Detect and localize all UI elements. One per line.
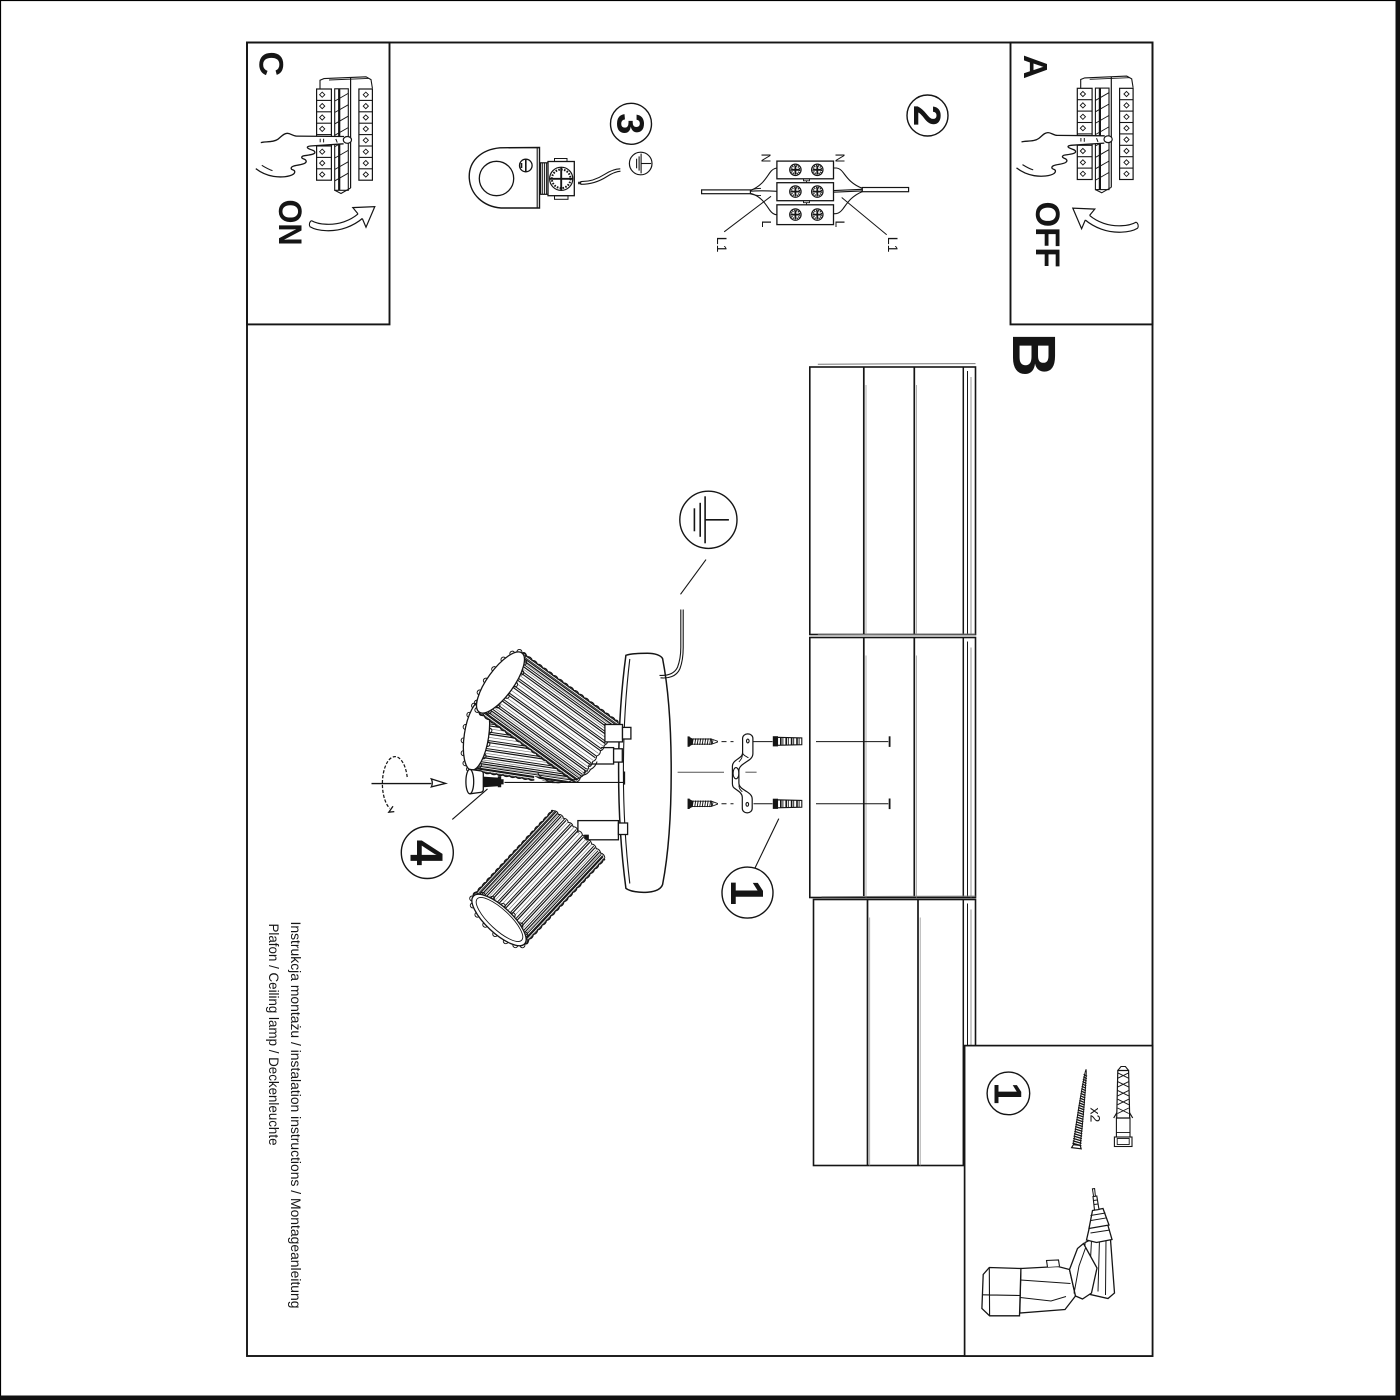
svg-text:x2: x2 <box>1088 1108 1104 1123</box>
svg-text:1: 1 <box>985 1083 1028 1105</box>
svg-text:N: N <box>759 154 773 163</box>
svg-text:1: 1 <box>721 880 773 906</box>
svg-text:Instrukcja montażu / instalati: Instrukcja montażu / instalation instruc… <box>288 922 303 1309</box>
svg-text:L1: L1 <box>714 237 730 253</box>
svg-text:N: N <box>832 154 846 163</box>
svg-text:L: L <box>833 221 847 228</box>
svg-text:B: B <box>1000 333 1068 377</box>
svg-text:Plafon / Ceiling lamp / Decken: Plafon / Ceiling lamp / Deckenleuchte <box>266 924 281 1146</box>
svg-text:3: 3 <box>608 113 650 134</box>
svg-text:C: C <box>252 52 290 77</box>
svg-text:ON: ON <box>272 200 308 246</box>
svg-text:4: 4 <box>401 840 453 866</box>
svg-text:L1: L1 <box>885 237 901 253</box>
svg-text:2: 2 <box>905 105 947 126</box>
svg-text:L: L <box>759 221 773 228</box>
svg-text:A: A <box>1016 55 1053 79</box>
svg-text:OFF: OFF <box>1028 202 1066 268</box>
